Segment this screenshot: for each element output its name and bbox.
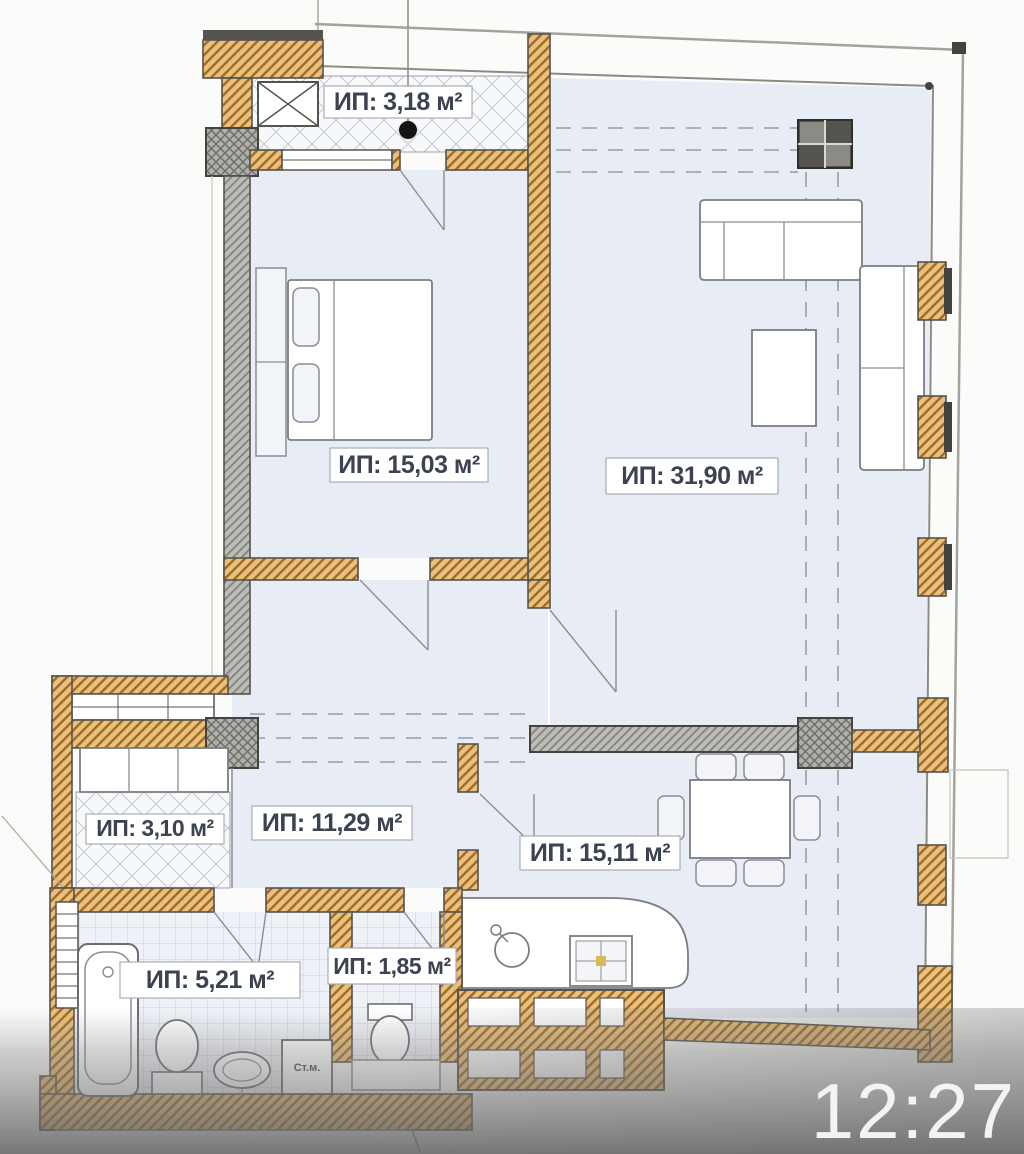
left-concrete-wall [224, 176, 250, 694]
dining-table-icon [690, 780, 790, 858]
room-label-loggia: ИП: 3,18 м² [334, 88, 462, 116]
kitchen-counter [462, 898, 688, 988]
chair-icon [696, 860, 736, 886]
room-label-wc: ИП: 1,85 м² [333, 953, 451, 979]
chair-icon [794, 796, 820, 840]
pillow-icon [293, 288, 319, 346]
concrete-column [798, 718, 852, 768]
wardrobe-icon [80, 748, 228, 792]
closet-furniture [80, 748, 228, 792]
kitchen-partition-wall [530, 726, 798, 752]
room-label-bathroom: ИП: 5,21 м² [146, 966, 274, 994]
room-label-bedroom: ИП: 15,03 м² [338, 451, 480, 479]
chair-icon [696, 754, 736, 780]
sink-icon [495, 933, 529, 967]
coffee-table-icon [752, 330, 816, 426]
adjacent-balcony-outline [950, 770, 1008, 858]
room-label-closet: ИП: 3,10 м² [96, 815, 214, 841]
room-label-hallway: ИП: 11,29 м² [262, 809, 402, 837]
vent-shaft [258, 82, 318, 126]
room-label-kitchen: ИП: 15,11 м² [530, 839, 670, 867]
room-label-living-room: ИП: 31,90 м² [621, 462, 763, 490]
vent-ladder [56, 902, 78, 1008]
chair-icon [744, 860, 784, 886]
chair-icon [658, 796, 684, 840]
pillow-icon [293, 364, 319, 422]
chair-icon [744, 754, 784, 780]
clock-timestamp: 12:27 [811, 1067, 1016, 1154]
video-overlay: 12:27 [0, 1008, 1024, 1154]
corner-marker [952, 42, 966, 54]
leader-dot [399, 121, 417, 139]
bedroom-furniture [256, 268, 432, 456]
burner-icon [596, 956, 606, 966]
floor-plan-screenshot: Ст.м. ИП: 3,18 м² ИП: 15,03 м² ИП: 31,90… [0, 0, 1024, 1154]
dark-column [798, 120, 852, 168]
floor-plan-svg: Ст.м. ИП: 3,18 м² ИП: 15,03 м² ИП: 31,90… [0, 0, 1024, 1154]
